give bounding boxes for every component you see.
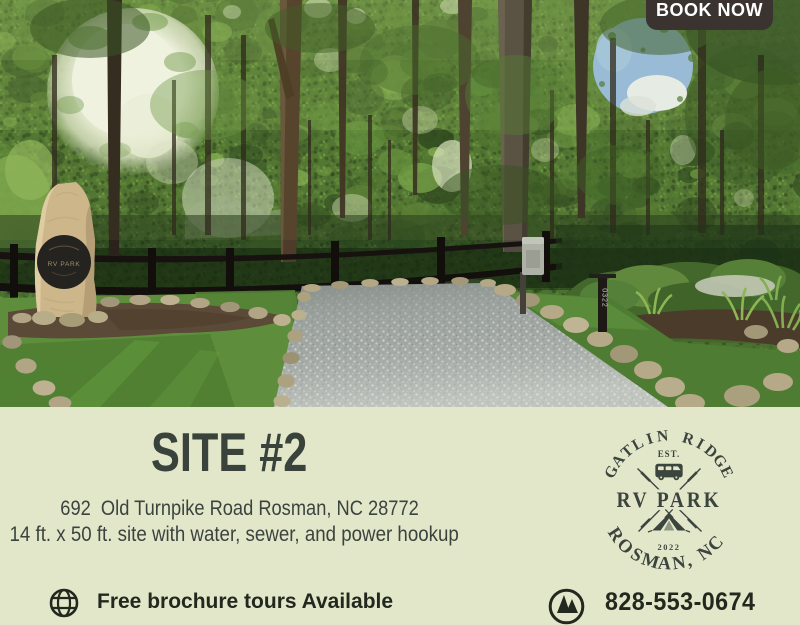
svg-text:RV PARK: RV PARK: [617, 487, 722, 512]
svg-text:2022: 2022: [657, 543, 680, 552]
svg-text:I: I: [644, 430, 655, 448]
svg-text:0322: 0322: [601, 288, 608, 308]
svg-text:EST.: EST.: [658, 449, 681, 459]
svg-text:RV PARK: RV PARK: [48, 261, 81, 268]
svg-text:N: N: [656, 427, 670, 445]
